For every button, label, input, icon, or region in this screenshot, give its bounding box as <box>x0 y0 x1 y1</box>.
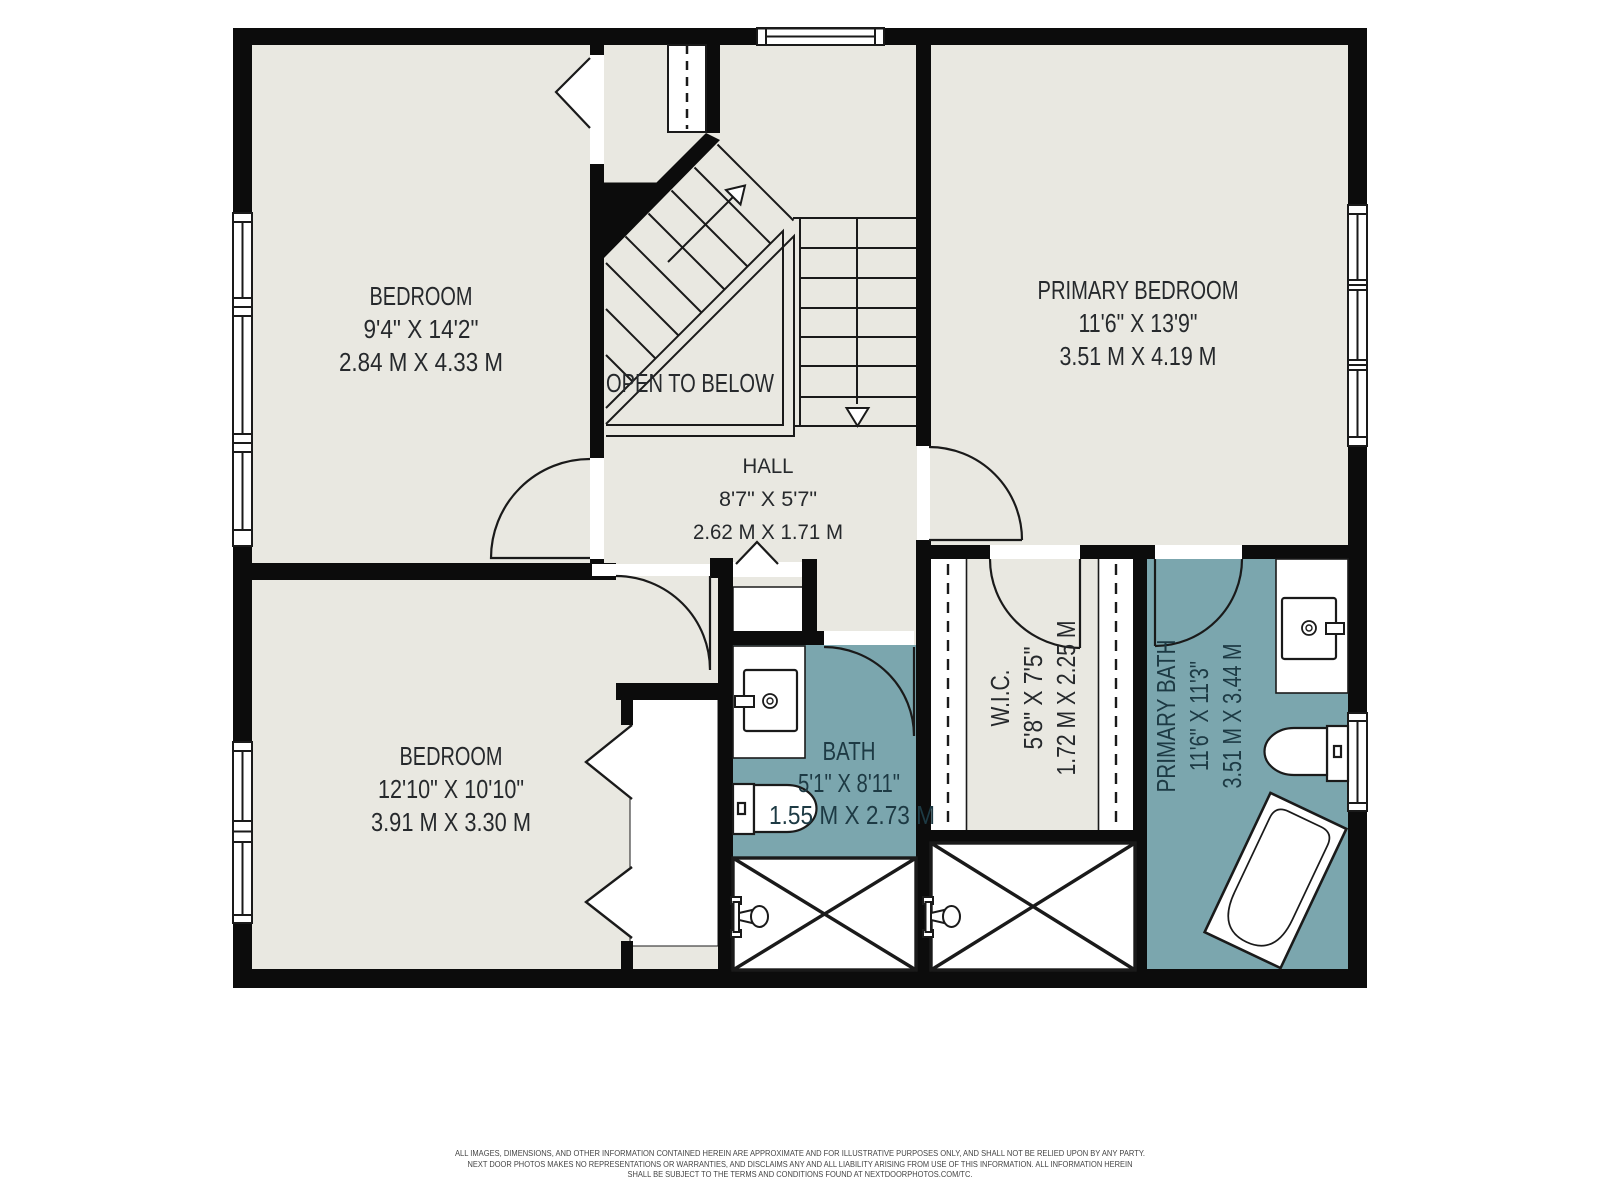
svg-text:OPEN TO BELOW: OPEN TO BELOW <box>606 370 774 398</box>
svg-text:9'4" X 14'2": 9'4" X 14'2" <box>364 316 479 344</box>
svg-text:5'1" X 8'11": 5'1" X 8'11" <box>798 770 900 798</box>
svg-text:PRIMARY BEDROOM: PRIMARY BEDROOM <box>1038 277 1239 305</box>
svg-text:1.55 M X 2.73 M: 1.55 M X 2.73 M <box>769 802 935 830</box>
svg-text:12'10" X 10'10": 12'10" X 10'10" <box>378 776 524 804</box>
svg-text:11'6" X 11'3": 11'6" X 11'3" <box>1186 661 1214 771</box>
svg-text:1.72 M X 2.25 M: 1.72 M X 2.25 M <box>1053 621 1081 776</box>
svg-text:3.51 M X 4.19 M: 3.51 M X 4.19 M <box>1060 343 1217 371</box>
svg-text:BEDROOM: BEDROOM <box>400 743 503 771</box>
svg-text:ALL IMAGES, DIMENSIONS, AND OT: ALL IMAGES, DIMENSIONS, AND OTHER INFORM… <box>455 1148 1145 1158</box>
svg-text:3.91 M X 3.30 M: 3.91 M X 3.30 M <box>371 809 531 837</box>
svg-text:5'8" X 7'5": 5'8" X 7'5" <box>1020 647 1048 750</box>
svg-text:BATH: BATH <box>823 738 876 766</box>
svg-text:SHALL BE SUBJECT TO THE TERMS: SHALL BE SUBJECT TO THE TERMS AND CONDIT… <box>628 1169 973 1179</box>
svg-text:NEXT DOOR PHOTOS MAKES NO REPR: NEXT DOOR PHOTOS MAKES NO REPRESENTATION… <box>468 1159 1133 1169</box>
svg-text:8'7" X 5'7": 8'7" X 5'7" <box>719 487 817 511</box>
svg-text:HALL: HALL <box>743 454 794 478</box>
svg-text:PRIMARY BATH: PRIMARY BATH <box>1153 640 1181 793</box>
svg-text:W.I.C.: W.I.C. <box>987 670 1015 727</box>
svg-text:2.62 M X 1.71 M: 2.62 M X 1.71 M <box>693 520 843 544</box>
svg-text:3.51 M X 3.44 M: 3.51 M X 3.44 M <box>1219 644 1247 789</box>
svg-text:11'6" X 13'9": 11'6" X 13'9" <box>1079 310 1198 338</box>
svg-text:2.84 M X 4.33 M: 2.84 M X 4.33 M <box>339 349 503 377</box>
svg-text:BEDROOM: BEDROOM <box>370 283 473 311</box>
